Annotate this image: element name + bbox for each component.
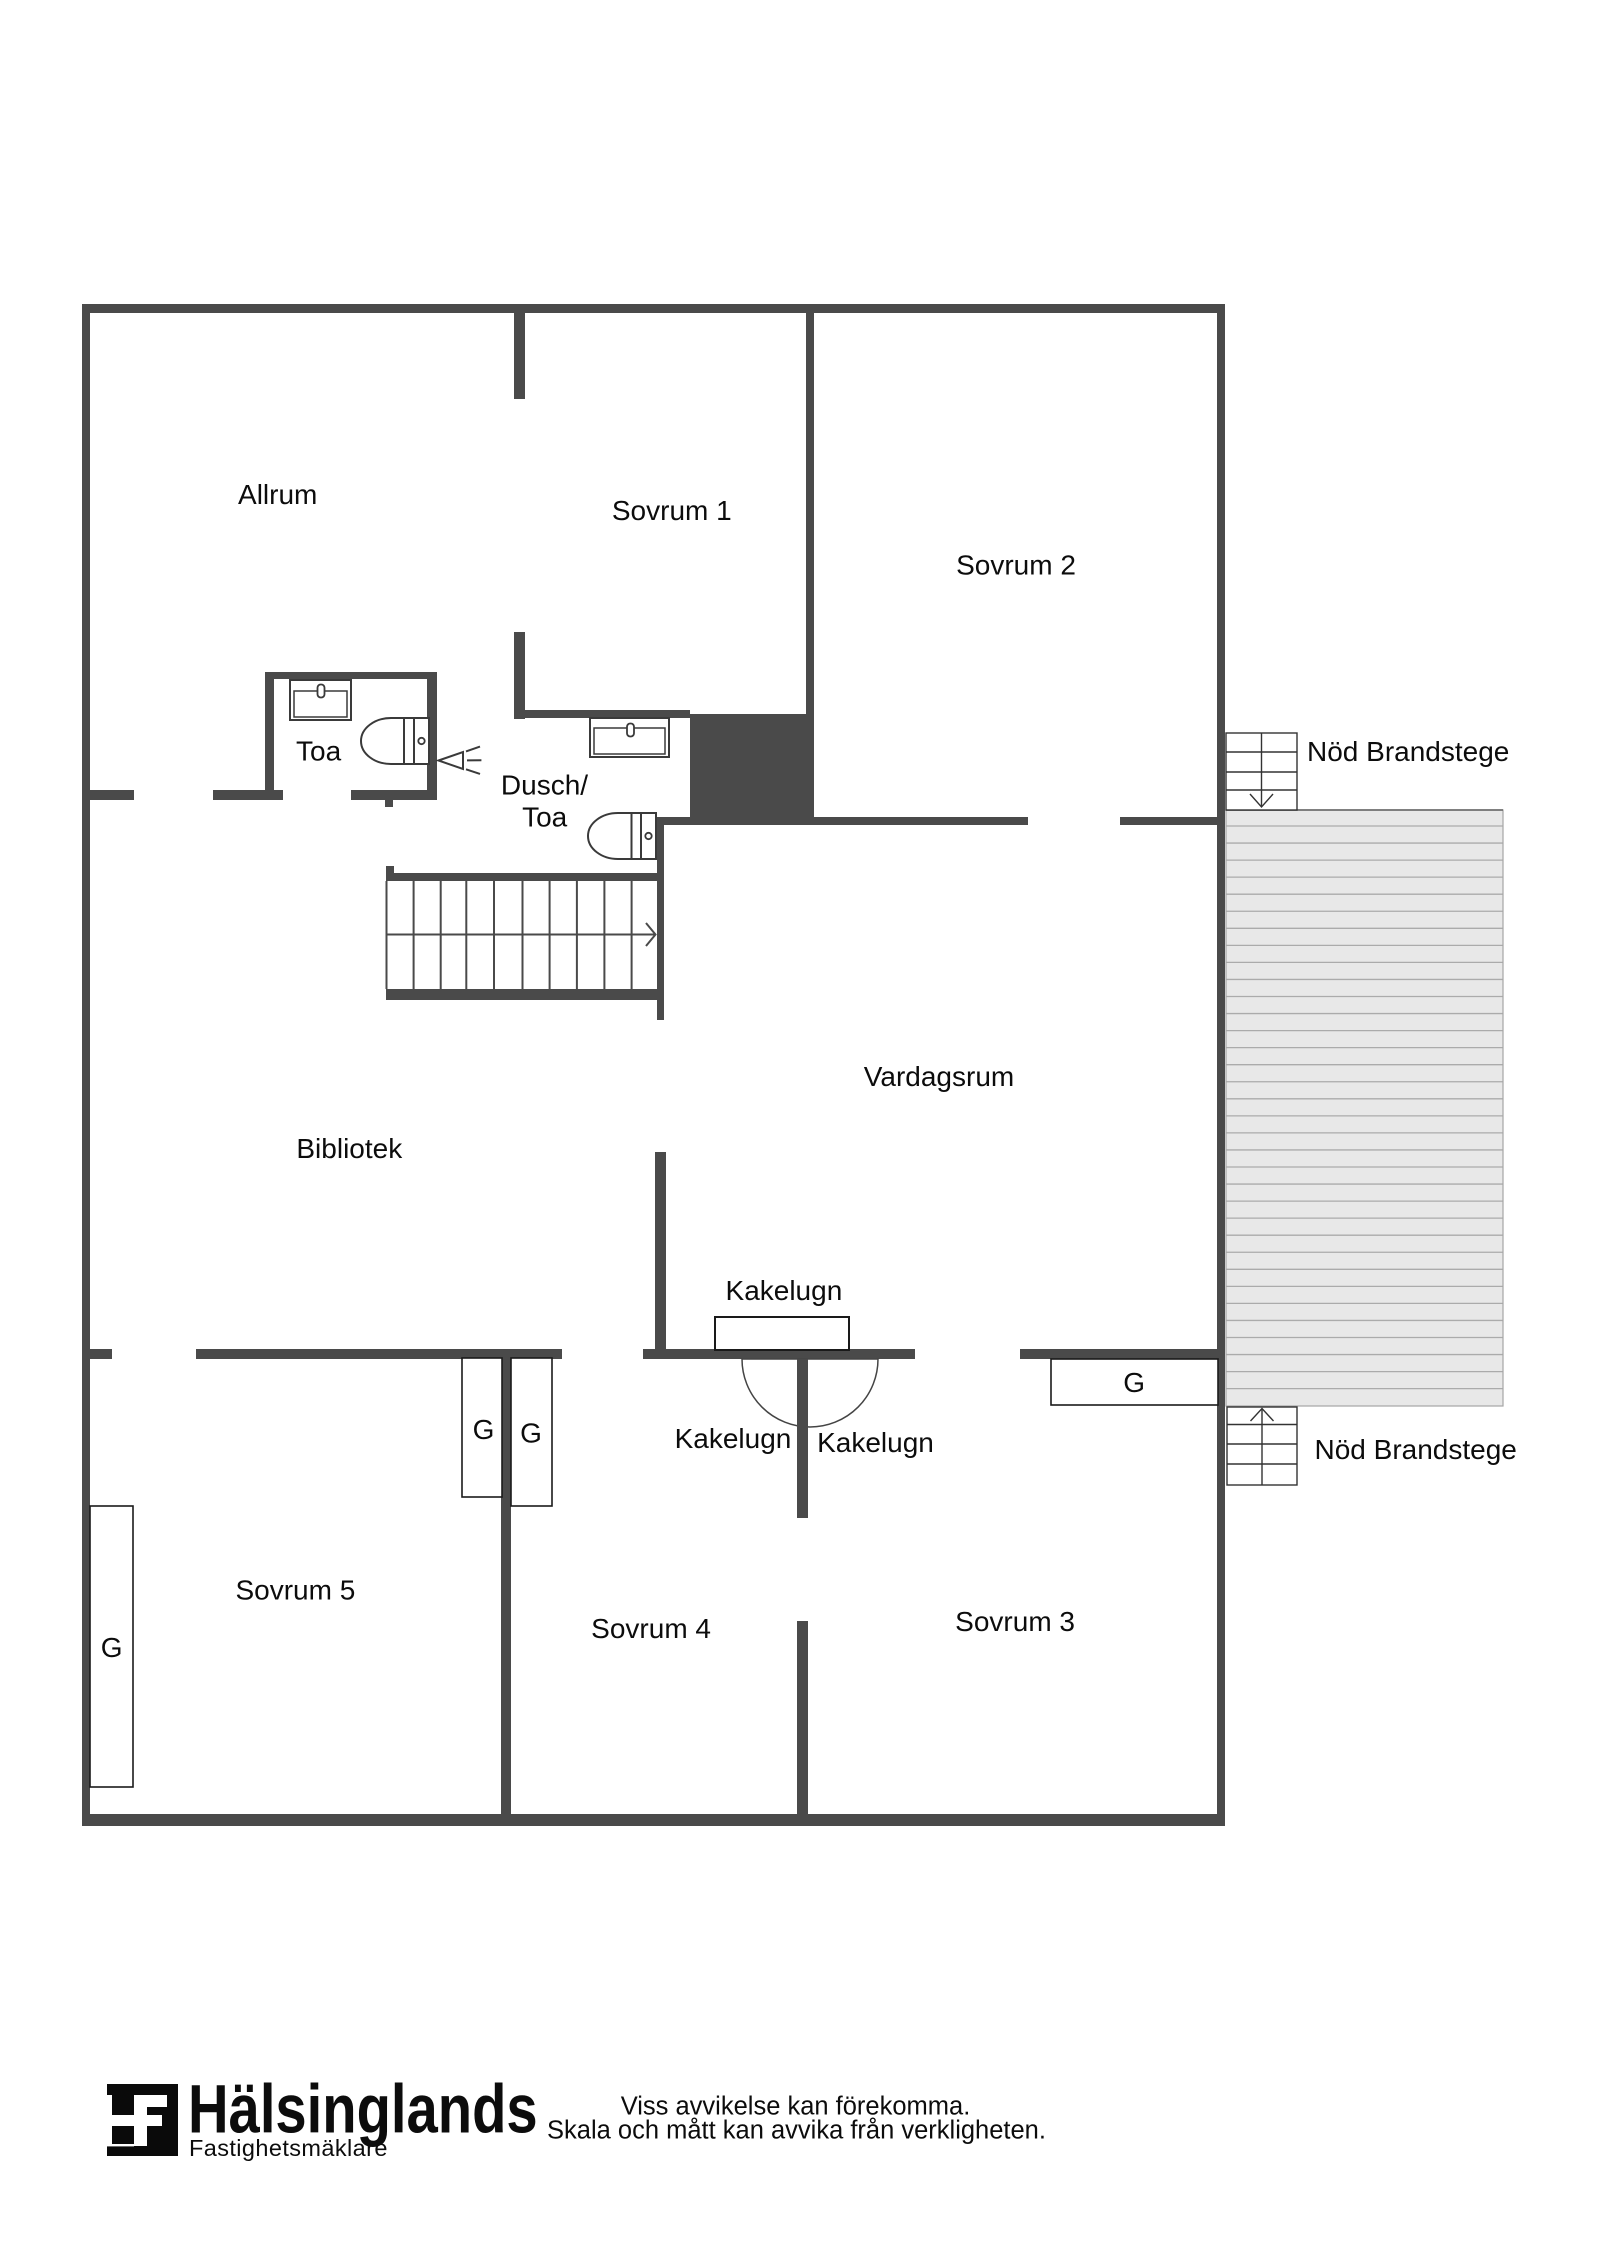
svg-text:Kakelugn: Kakelugn (675, 1423, 792, 1454)
svg-text:Toa: Toa (522, 802, 568, 833)
svg-text:Vardagsrum: Vardagsrum (864, 1061, 1014, 1092)
svg-text:G: G (473, 1414, 495, 1445)
svg-text:Sovrum 5: Sovrum 5 (235, 1574, 355, 1605)
svg-text:G: G (1123, 1367, 1145, 1398)
svg-text:Kakelugn: Kakelugn (817, 1427, 934, 1458)
svg-text:Nöd Brandstege: Nöd Brandstege (1307, 736, 1509, 767)
svg-text:Allrum: Allrum (238, 479, 317, 510)
svg-text:Toa: Toa (296, 736, 342, 767)
svg-text:Kakelugn: Kakelugn (726, 1275, 843, 1306)
svg-text:Nöd Brandstege: Nöd Brandstege (1315, 1434, 1517, 1465)
svg-text:Sovrum 3: Sovrum 3 (955, 1606, 1075, 1637)
svg-text:Sovrum 1: Sovrum 1 (612, 495, 732, 526)
svg-text:G: G (520, 1418, 542, 1449)
svg-text:Skala och mått kan avvika från: Skala och mått kan avvika från verklighe… (547, 2117, 1046, 2145)
svg-text:Bibliotek: Bibliotek (296, 1133, 403, 1164)
svg-text:Sovrum 4: Sovrum 4 (591, 1613, 711, 1644)
svg-text:G: G (101, 1632, 123, 1663)
svg-text:Dusch/: Dusch/ (501, 770, 588, 801)
svg-text:Sovrum 2: Sovrum 2 (956, 549, 1076, 580)
svg-text:Fastighetsmäklare: Fastighetsmäklare (189, 2135, 388, 2161)
